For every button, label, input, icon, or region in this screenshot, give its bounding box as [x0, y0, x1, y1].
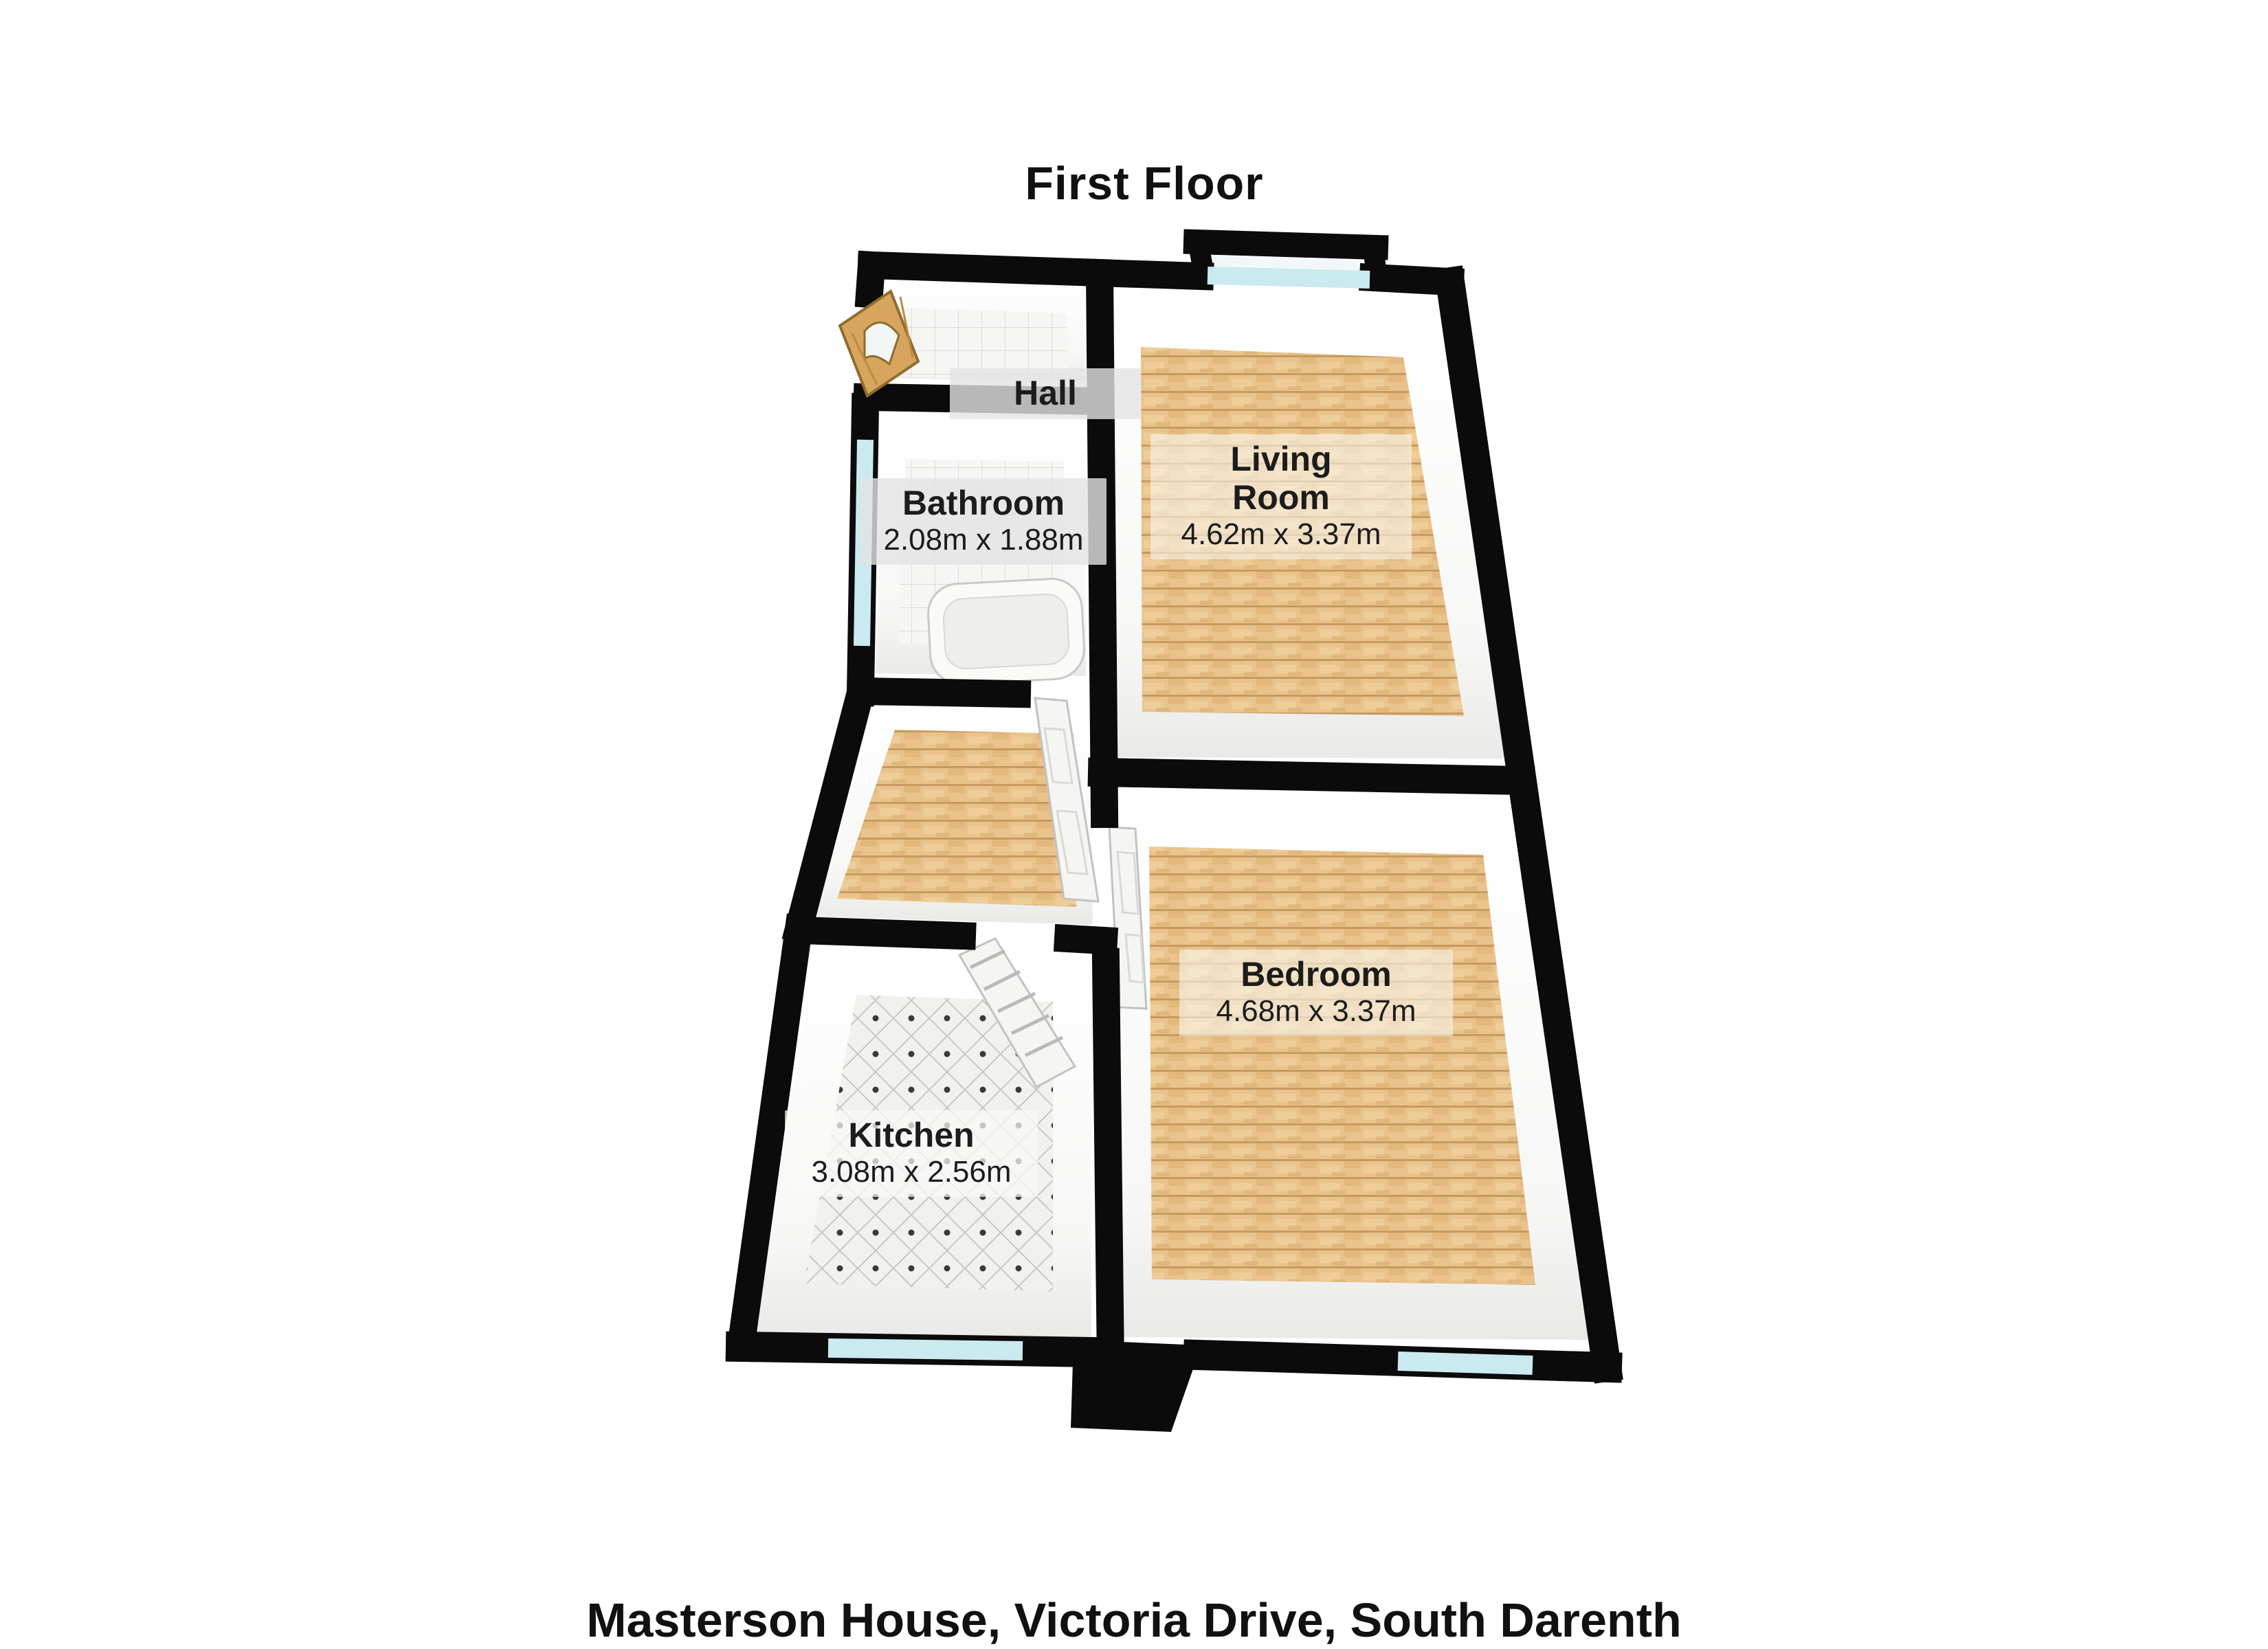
bedroom-dimensions: 4.68m x 3.37m	[1182, 994, 1450, 1029]
floorplan-page: First Floor	[0, 0, 2268, 1649]
bathtub	[926, 577, 1085, 686]
bathroom-dimensions: 2.08m x 1.88m	[863, 522, 1104, 558]
kitchen-top-wall-left	[800, 930, 962, 936]
bedroom-name: Bedroom	[1182, 955, 1450, 994]
living-room-window	[1208, 276, 1370, 280]
bedroom-window	[1398, 1361, 1533, 1365]
bay-jamb-left	[1199, 245, 1204, 275]
left-exterior-wall-top	[869, 265, 871, 294]
hall-name: Hall	[953, 374, 1138, 412]
living-room-label: Living Room 4.62m x 3.37m	[1150, 434, 1412, 559]
kitchen-window	[828, 1348, 1023, 1351]
bay-outer-wall	[1196, 242, 1376, 247]
kitchen-name: Kitchen	[788, 1116, 1035, 1154]
living-bedroom-wall	[1102, 772, 1520, 781]
bedroom-label: Bedroom 4.68m x 3.37m	[1179, 950, 1453, 1036]
kitchen-dimensions: 3.08m x 2.56m	[788, 1154, 1035, 1190]
hall-top-wall	[871, 265, 1098, 273]
central-divider-wall-lower	[1106, 962, 1111, 1366]
hall-label: Hall	[950, 368, 1141, 419]
bedroom-floor	[1149, 846, 1535, 1285]
kitchen-label: Kitchen 3.08m x 2.56m	[785, 1110, 1038, 1197]
footer-address: Masterson House, Victoria Drive, South D…	[412, 1593, 1856, 1648]
bathroom-name: Bathroom	[863, 484, 1104, 522]
living-room-name-line2: Room	[1153, 478, 1409, 517]
living-room-top-wall-left	[1098, 273, 1200, 276]
floorplan-drawing	[0, 0, 2268, 1649]
bathroom-corridor-wall	[862, 691, 1017, 694]
living-room-dimensions: 4.62m x 3.37m	[1153, 517, 1409, 552]
bathroom-label: Bathroom 2.08m x 1.88m	[860, 478, 1107, 565]
kitchen-top-wall-right	[1068, 939, 1104, 941]
living-room-name-line1: Living	[1153, 440, 1409, 478]
